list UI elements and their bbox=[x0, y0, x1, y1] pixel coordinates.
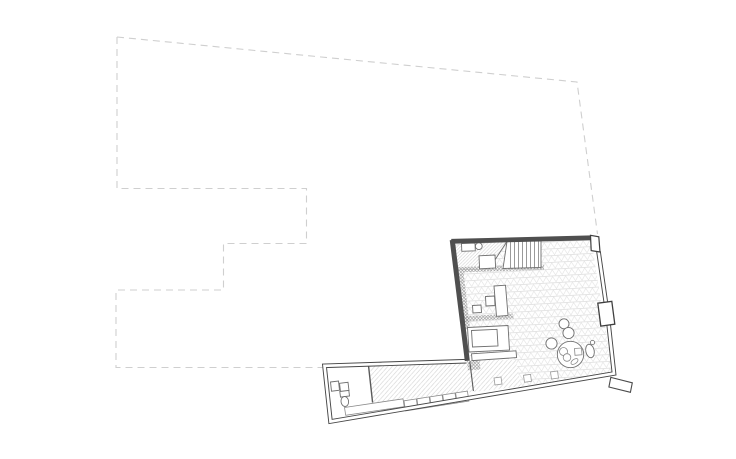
floor-square bbox=[551, 371, 559, 379]
wall-band-junction bbox=[467, 360, 481, 371]
toilet-bowl bbox=[340, 396, 349, 407]
chimney bbox=[591, 235, 601, 252]
staircase bbox=[503, 241, 541, 269]
chair bbox=[546, 338, 557, 349]
plate bbox=[563, 354, 571, 362]
parcel-boundary-right bbox=[117, 37, 598, 234]
stool bbox=[475, 243, 482, 250]
cabinet-top bbox=[462, 243, 476, 251]
bath-cabinet bbox=[331, 381, 340, 391]
side-table bbox=[473, 305, 482, 313]
tray bbox=[575, 348, 583, 355]
plan-shapes bbox=[116, 37, 632, 422]
plant-top bbox=[590, 340, 594, 344]
floor-plan-page bbox=[0, 0, 736, 459]
floor-square bbox=[494, 377, 502, 385]
chair-main bbox=[486, 296, 496, 306]
desk-main bbox=[494, 285, 508, 316]
desk-entry bbox=[479, 255, 496, 269]
entry-door bbox=[598, 301, 615, 326]
corner-step bbox=[609, 377, 632, 392]
floor-square bbox=[524, 374, 532, 382]
parcel-boundary-left bbox=[116, 37, 323, 368]
kitchen-sink bbox=[472, 329, 499, 347]
chair bbox=[563, 327, 574, 338]
plan-svg bbox=[0, 0, 736, 459]
